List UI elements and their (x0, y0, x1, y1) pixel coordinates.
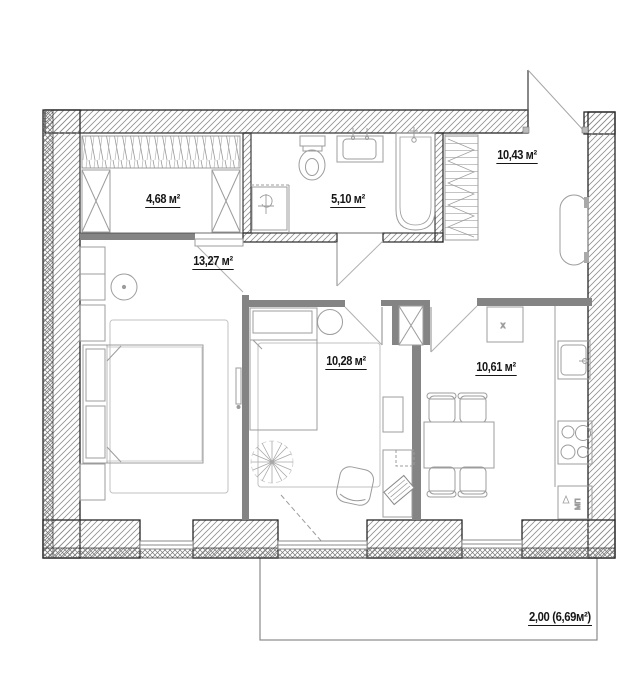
shelf-unit-left-icon (82, 170, 110, 232)
bedroom-furniture (250, 308, 414, 517)
interior-partitions (80, 233, 592, 520)
washing-machine-place-icon (251, 185, 289, 233)
nightstand-bottom-icon (80, 464, 105, 500)
round-side-table-icon (318, 310, 343, 335)
living-room-furniture (80, 247, 241, 500)
bathroom-fixtures (251, 127, 435, 233)
living-room-window (140, 541, 193, 549)
single-bed-icon (250, 308, 317, 430)
shelf-unit-right-icon (212, 170, 240, 232)
coat-rack-icon (445, 135, 478, 240)
room-label-living-room: 13,27 м² (192, 254, 233, 270)
nightstand-top-icon (80, 305, 105, 341)
hall-wardrobe-cabinet (399, 306, 423, 345)
table-top (424, 422, 494, 468)
kitchen-sink-icon (558, 341, 590, 379)
wall-tv-icon (236, 368, 241, 409)
stove-icon (558, 421, 592, 464)
bedroom-door (345, 307, 382, 345)
kitchen-door (431, 306, 477, 352)
hanging-rail-icon (82, 136, 240, 168)
bathroom-door (337, 241, 383, 286)
balcony-outline (260, 558, 597, 640)
radiator-column-icon (560, 195, 589, 265)
shelf-icon (383, 397, 403, 432)
chair-seat (460, 467, 486, 494)
room-label-hallway: 10,43 м² (496, 148, 537, 164)
dining-table-icon (424, 393, 494, 497)
chair-seat (429, 467, 455, 494)
laptop-icon (384, 476, 414, 505)
entrance-door (523, 70, 588, 133)
stool-icon (111, 274, 137, 300)
chair-seat (460, 396, 486, 423)
balcony-door (281, 495, 323, 543)
plant-icon (251, 441, 293, 483)
floor-plan-page: x МП (0, 0, 637, 700)
appliance-label: МП (573, 498, 582, 510)
room-label-bathroom: 5,10 м² (330, 192, 366, 208)
balcony-door-sill (278, 541, 367, 549)
rug-icon (110, 320, 228, 493)
room-label-balcony: 2,00 (6,69м²) (528, 610, 592, 626)
chair-seat (429, 396, 455, 423)
appliance-place-icon: МП (558, 486, 592, 519)
cabinet-mark: x (501, 320, 506, 330)
floor-plan-drawing: x МП (0, 0, 637, 700)
kitchen-window (462, 540, 522, 548)
wardrobe-fixtures (80, 133, 243, 233)
toilet-icon (299, 136, 325, 180)
double-bed-icon (83, 345, 203, 463)
kitchen-furniture: x МП (424, 306, 592, 519)
room-label-kitchen: 10,61 м² (475, 360, 516, 376)
bathtub-icon (396, 127, 435, 230)
pouf-icon (335, 465, 376, 507)
room-label-wardrobe: 4,68 м² (145, 192, 181, 208)
kitchen-cabinet-icon: x (487, 307, 523, 342)
room-label-bedroom: 10,28 м² (325, 354, 366, 370)
